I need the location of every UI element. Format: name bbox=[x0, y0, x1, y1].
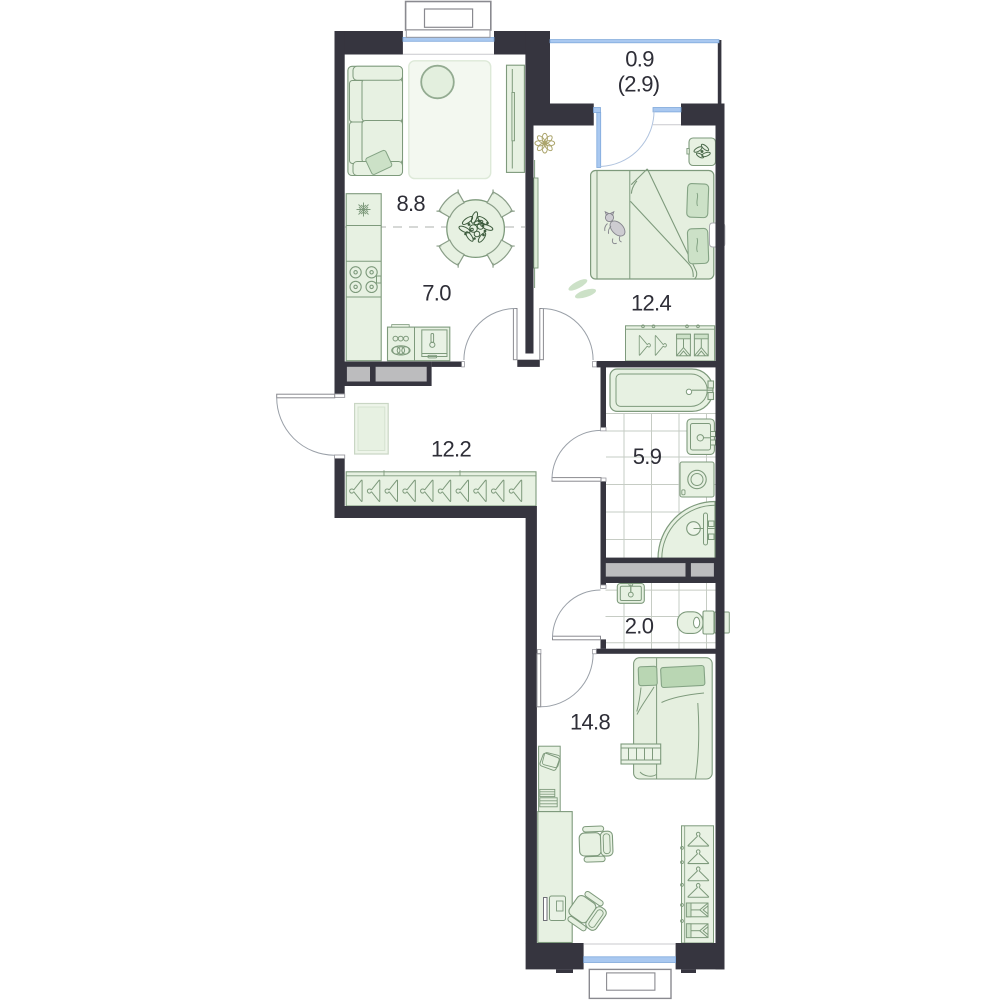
svg-text:5.9: 5.9 bbox=[633, 444, 662, 469]
svg-text:8.8: 8.8 bbox=[396, 191, 425, 216]
svg-text:12.4: 12.4 bbox=[631, 290, 671, 315]
svg-text:0.9: 0.9 bbox=[625, 47, 654, 72]
svg-text:14.8: 14.8 bbox=[570, 709, 610, 734]
svg-text:(2.9): (2.9) bbox=[618, 72, 660, 97]
svg-text:12.2: 12.2 bbox=[431, 437, 471, 462]
svg-text:7.0: 7.0 bbox=[422, 280, 451, 305]
svg-text:2.0: 2.0 bbox=[625, 614, 654, 639]
